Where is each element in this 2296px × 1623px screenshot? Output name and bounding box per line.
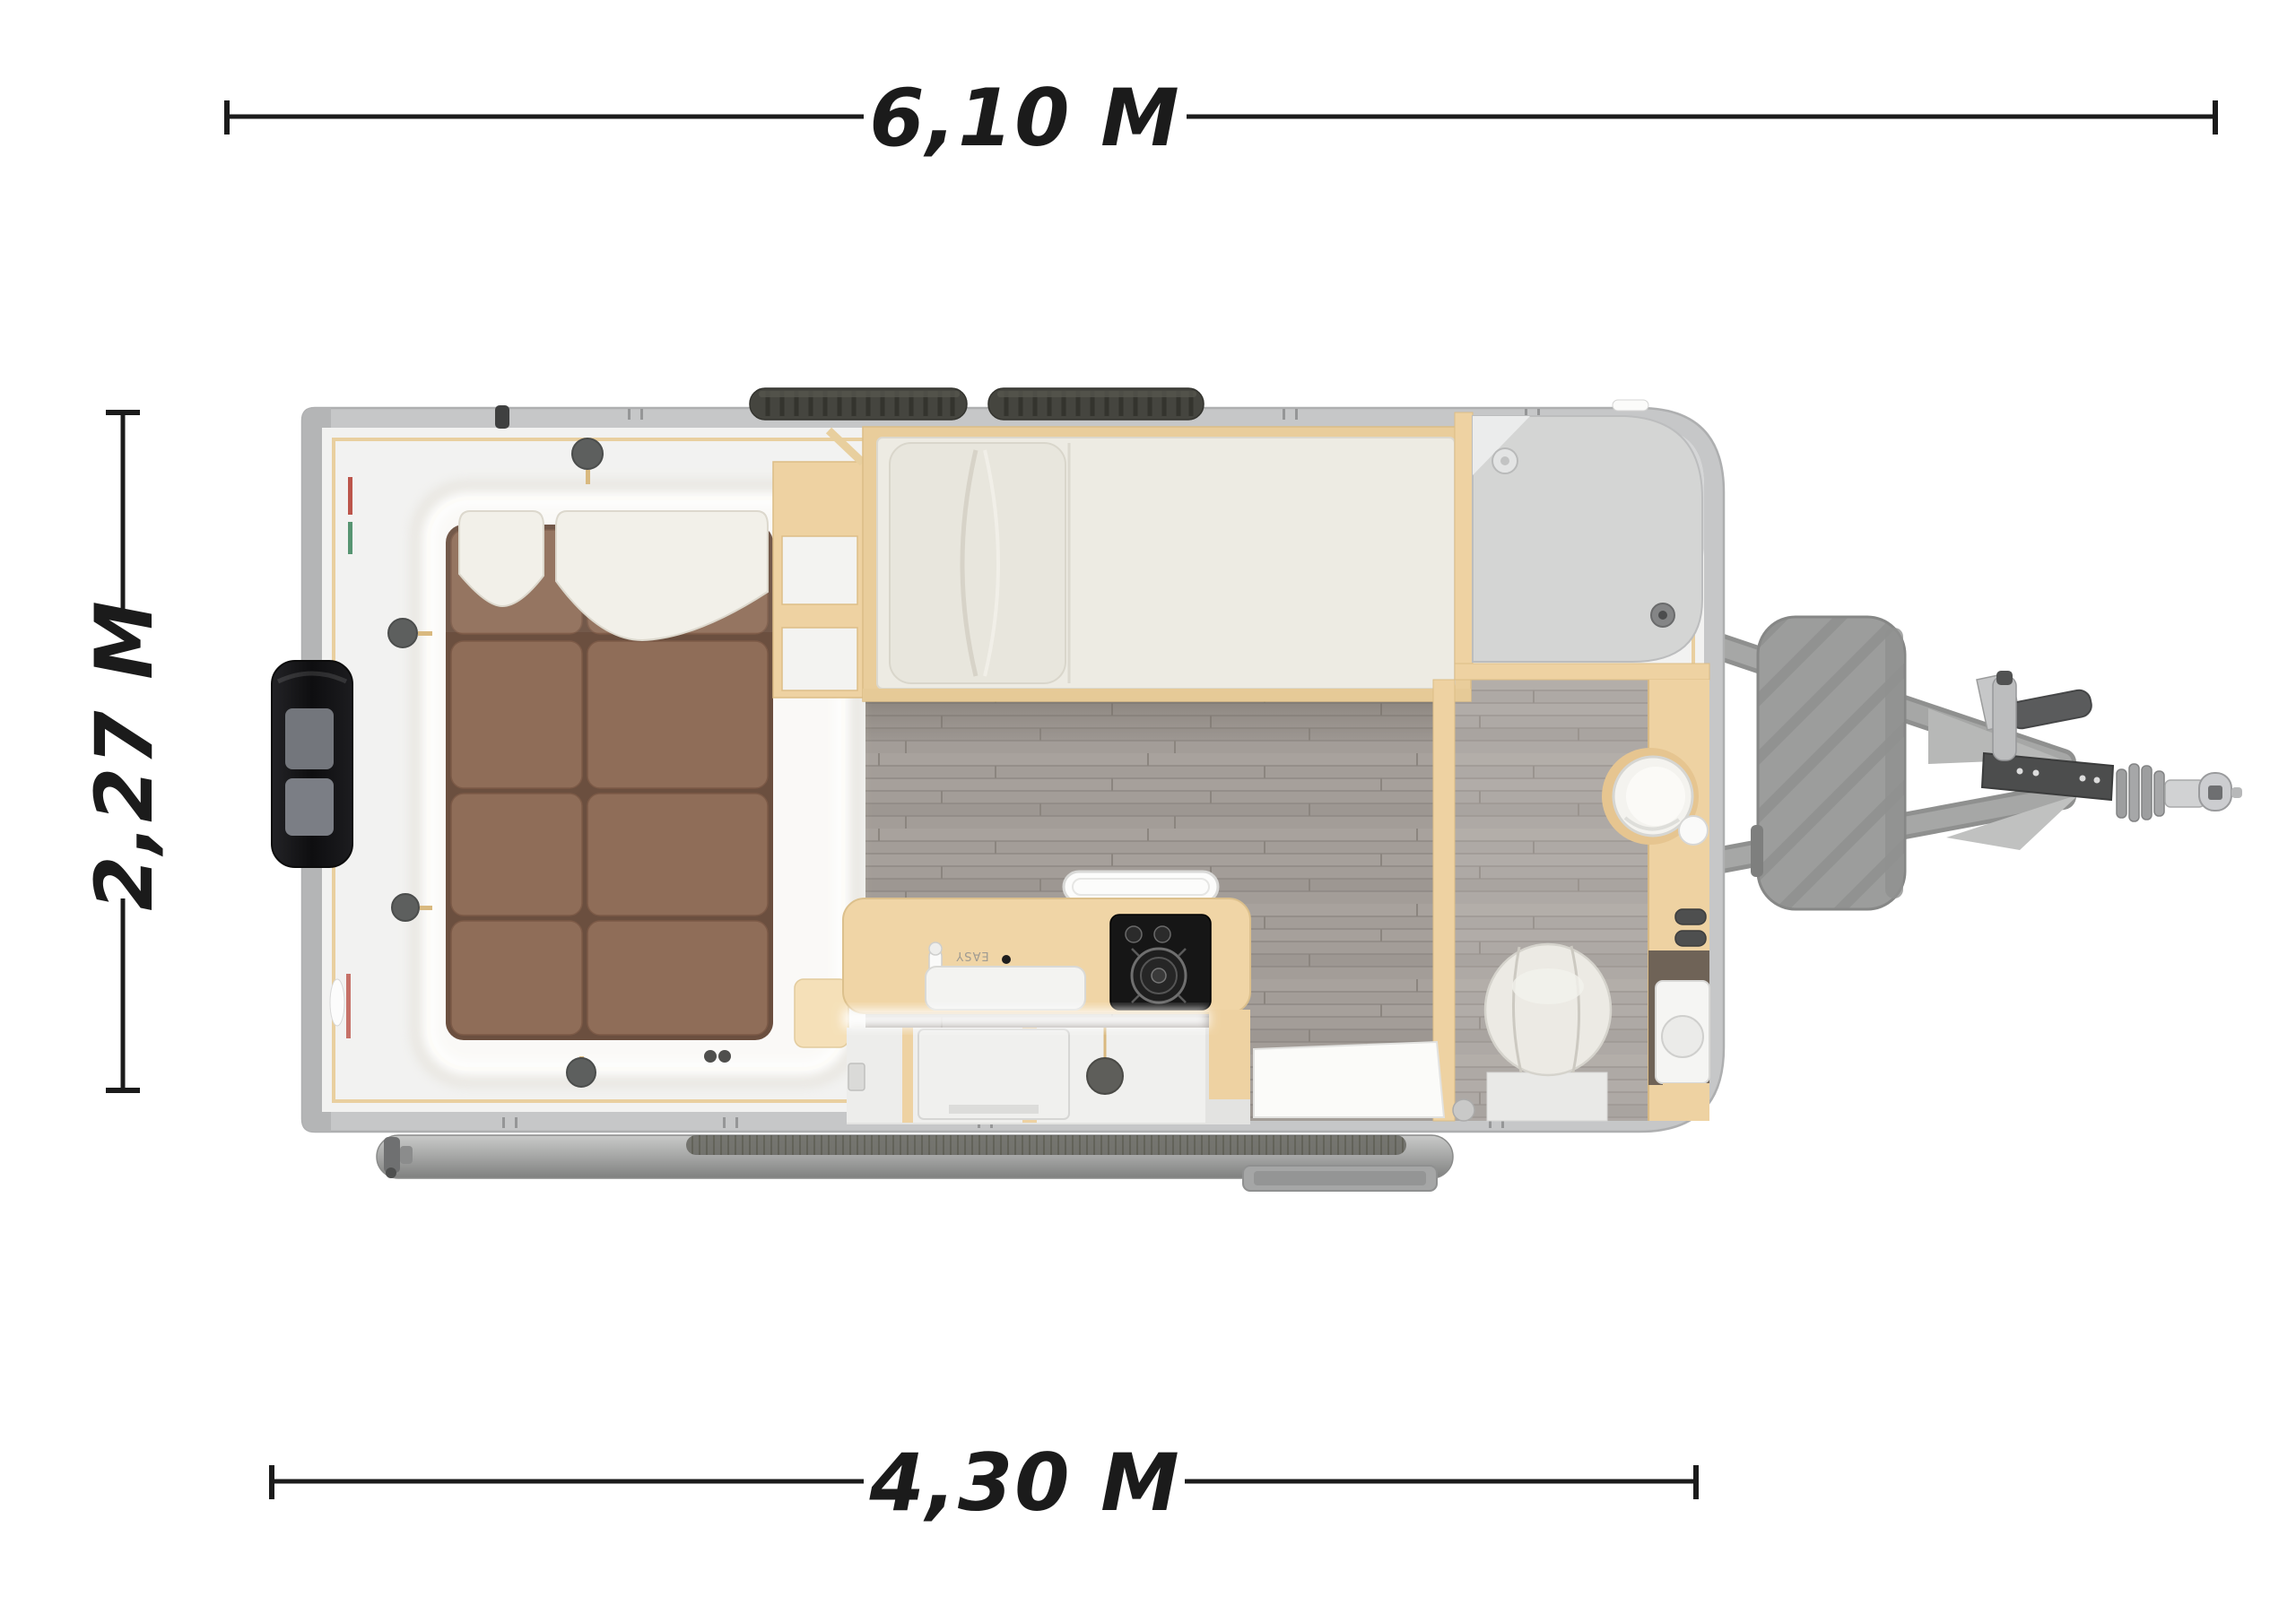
dimension-bottom-body-length: 4,30 M (269, 1436, 1699, 1529)
cabinet-handle (1675, 909, 1706, 924)
dimension-label-total-length: 6,10 M (869, 72, 1180, 164)
tube-end-fitting (384, 1137, 400, 1173)
dimension-left-width: 2,27 M (78, 410, 170, 1093)
caravan-floorplan-page: 6,10 M 2,27 M 4,30 M (0, 0, 2296, 1623)
wall-knob (392, 894, 419, 921)
sofa-cushion (451, 794, 582, 916)
grab-rail (1064, 872, 1218, 902)
wall-knob (572, 438, 603, 469)
sofa-cushion (587, 641, 768, 788)
kitchen-sink (926, 967, 1085, 1010)
dimension-top-length: 6,10 M (224, 72, 2218, 164)
jockey-wheel-clamp (1993, 676, 2016, 760)
handbrake-lever (2007, 688, 2093, 730)
wall-knob (1453, 1099, 1474, 1121)
wall-knob (567, 1058, 596, 1087)
sofa-cushion (587, 794, 768, 916)
rear-marker-red (348, 477, 352, 515)
wardrobe-cabinet (773, 430, 865, 698)
coupling-head (2117, 764, 2242, 821)
shower-wall (1455, 412, 1473, 680)
spare-wheel-box (272, 661, 352, 867)
dimension-label-body-length: 4,30 M (868, 1436, 1180, 1529)
wall-knob (388, 619, 417, 647)
entry-door-panel (1254, 1042, 1444, 1117)
caravan-floorplan-diagram: 6,10 M 2,27 M 4,30 M (0, 0, 2296, 1623)
rear-marker-green (348, 522, 352, 554)
bed-pillow (890, 443, 1065, 683)
roof-handle (495, 405, 509, 429)
counter-step (795, 979, 848, 1047)
bed (863, 427, 1471, 701)
stove-knob (1154, 926, 1170, 942)
led-strip-kitchen (843, 1010, 1209, 1028)
open-shelf (782, 536, 857, 604)
roof-vent (1613, 400, 1648, 411)
stove (1110, 915, 1211, 1010)
toilet (1485, 944, 1611, 1075)
side-accessories (377, 1135, 1453, 1191)
cabinet-handle (1675, 931, 1706, 946)
tire-right (988, 388, 1204, 420)
gas-bottle-box (1751, 617, 1905, 909)
door-knob (1679, 816, 1708, 845)
hanging-knob (1087, 1058, 1123, 1094)
sofa-cushion (451, 921, 582, 1035)
awning-channel (686, 1135, 1406, 1155)
box-latch (1751, 825, 1763, 877)
drawbar-assembly (1717, 617, 2242, 909)
sink-brand-label: EASY (955, 949, 988, 962)
stove-knob (1126, 926, 1142, 942)
sofa-cushion (587, 921, 768, 1035)
toilet-platform (1487, 1072, 1607, 1121)
shower-room (1455, 400, 1709, 680)
rear-marker-red (346, 974, 351, 1038)
switch-panel (848, 1063, 865, 1090)
kitchen: EASY (795, 872, 1250, 1124)
bed-rail (863, 689, 1471, 701)
open-shelf (782, 628, 857, 690)
dimension-label-width: 2,27 M (78, 599, 170, 910)
sofa-cushion (451, 641, 582, 788)
tire-left (750, 388, 967, 420)
rear-light-lens (330, 979, 344, 1026)
